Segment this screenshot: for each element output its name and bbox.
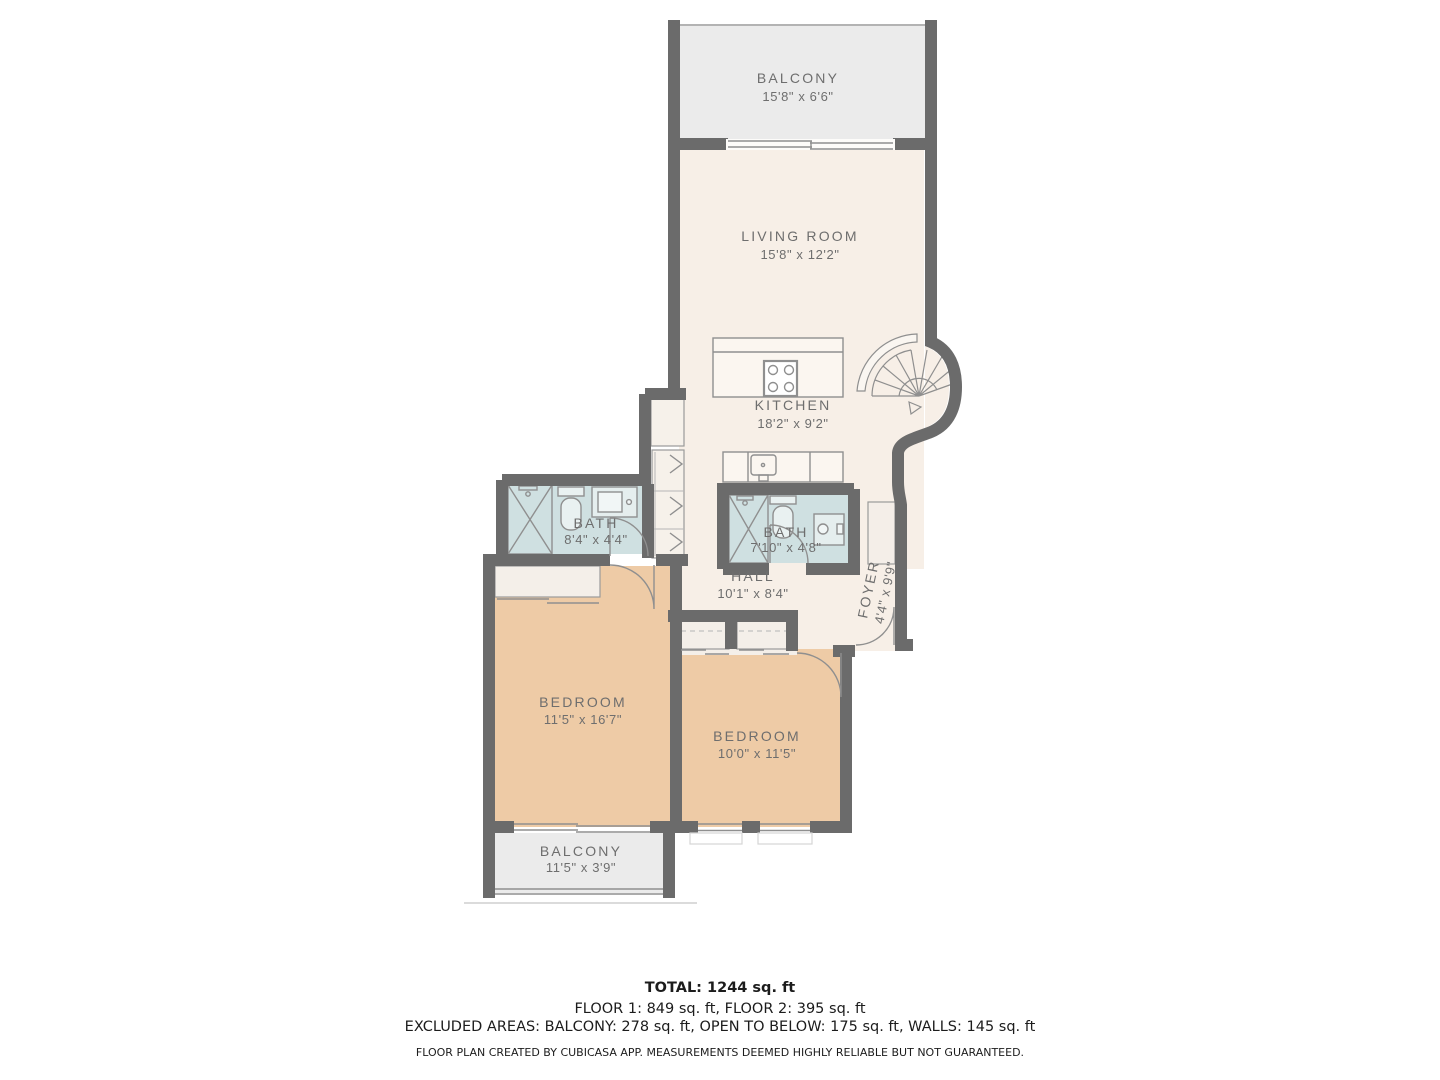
kitchen-counter	[723, 452, 843, 482]
sill-bedroom-right-1	[690, 833, 742, 844]
room-label-balcony-top: BALCONY	[757, 70, 839, 86]
room-dims-bedroom-left: 11'5" x 16'7"	[544, 712, 622, 727]
room-dims-kitchen: 18'2" x 9'2"	[757, 416, 828, 431]
room-dims-bedroom-right: 10'0" x 11'5"	[718, 746, 796, 761]
room-label-bath-right: BATH	[763, 524, 808, 540]
room-dims-bath-right: 7'10" x 4'8"	[750, 540, 821, 555]
room-label-hall: HALL	[731, 568, 775, 584]
summary-floors: FLOOR 1: 849 sq. ft, FLOOR 2: 395 sq. ft	[0, 1001, 1440, 1017]
floor-fills	[495, 25, 949, 893]
closet-kitchen-alcove	[651, 399, 684, 446]
sill-bedroom-right-2	[758, 833, 812, 844]
closet-bedroom-right-2	[737, 620, 790, 649]
room-dims-bath-left: 8'4" x 4'4"	[564, 532, 627, 547]
summary-total: TOTAL: 1244 sq. ft	[0, 980, 1440, 996]
room-label-bedroom-left: BEDROOM	[539, 694, 627, 710]
sink-icon	[592, 487, 637, 517]
floor-plan-canvas: BALCONY 15'8" x 6'6" LIVING ROOM 15'8" x…	[0, 0, 1440, 1080]
room-dims-hall: 10'1" x 8'4"	[717, 586, 788, 601]
room-label-kitchen: KITCHEN	[755, 397, 832, 413]
room-label-balcony-bottom: BALCONY	[540, 843, 622, 859]
room-label-bath-left: BATH	[573, 515, 618, 531]
summary-excluded: EXCLUDED AREAS: BALCONY: 278 sq. ft, OPE…	[0, 1019, 1440, 1035]
room-label-living-room: LIVING ROOM	[741, 228, 859, 244]
room-dims-living-room: 15'8" x 12'2"	[760, 247, 839, 262]
closet-bedroom-left	[495, 566, 600, 597]
room-dims-balcony-top: 15'8" x 6'6"	[762, 89, 833, 104]
floor-plan-page: BALCONY 15'8" x 6'6" LIVING ROOM 15'8" x…	[0, 0, 1440, 1080]
summary-disclaimer: FLOOR PLAN CREATED BY CUBICASA APP. MEAS…	[0, 1046, 1440, 1059]
closet-foyer	[868, 502, 895, 564]
room-dims-balcony-bottom: 11'5" x 3'9"	[546, 860, 616, 875]
closet-bedroom-right-1	[679, 620, 729, 649]
room-label-bedroom-right: BEDROOM	[713, 728, 801, 744]
